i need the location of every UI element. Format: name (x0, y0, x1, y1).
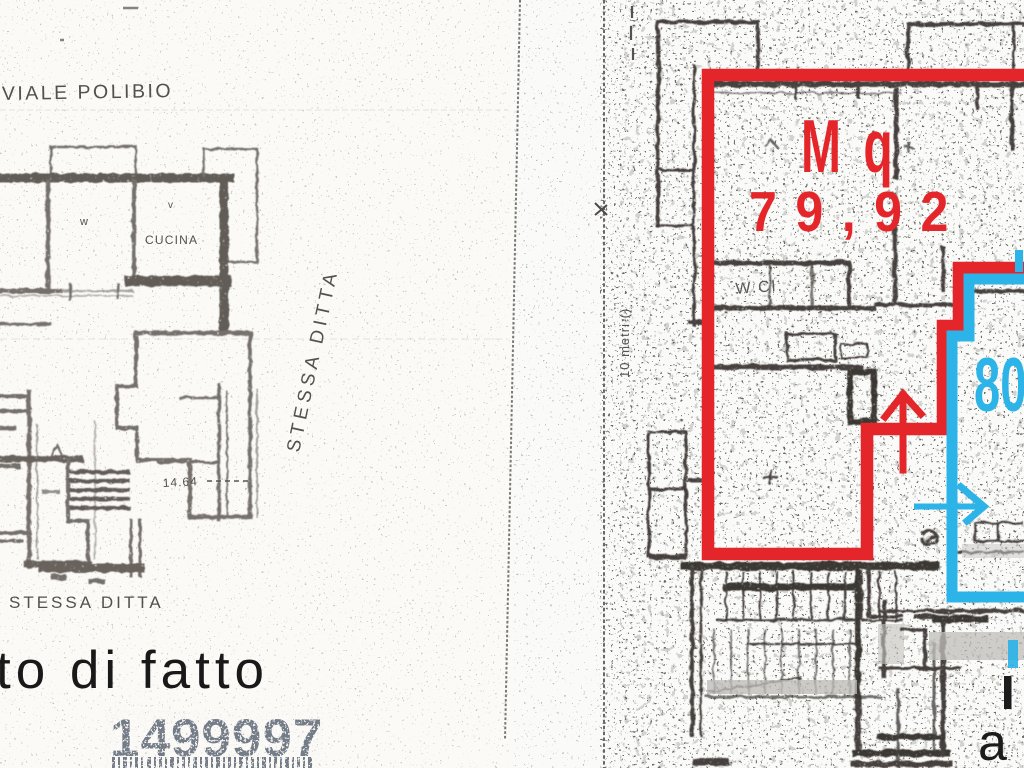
svg-text:W.Cl.: W.Cl. (735, 278, 784, 298)
svg-text:VIALE POLIBIO: VIALE POLIBIO (2, 80, 174, 105)
svg-text:CUCINA: CUCINA (145, 233, 198, 247)
svg-text:w: w (79, 216, 88, 228)
svg-text:v: v (168, 200, 173, 211)
svg-text:79,92: 79,92 (749, 180, 967, 244)
svg-text:to di fatto: to di fatto (0, 641, 269, 700)
svg-text:80: 80 (974, 344, 1024, 428)
svg-text:Mq: Mq (801, 105, 915, 188)
svg-text:14.64: 14.64 (162, 474, 198, 490)
svg-text:10 metri (): 10 metri () (617, 308, 632, 378)
svg-text:STESSA DITTA: STESSA DITTA (9, 593, 164, 612)
svg-text:a p: a p (978, 714, 1024, 768)
